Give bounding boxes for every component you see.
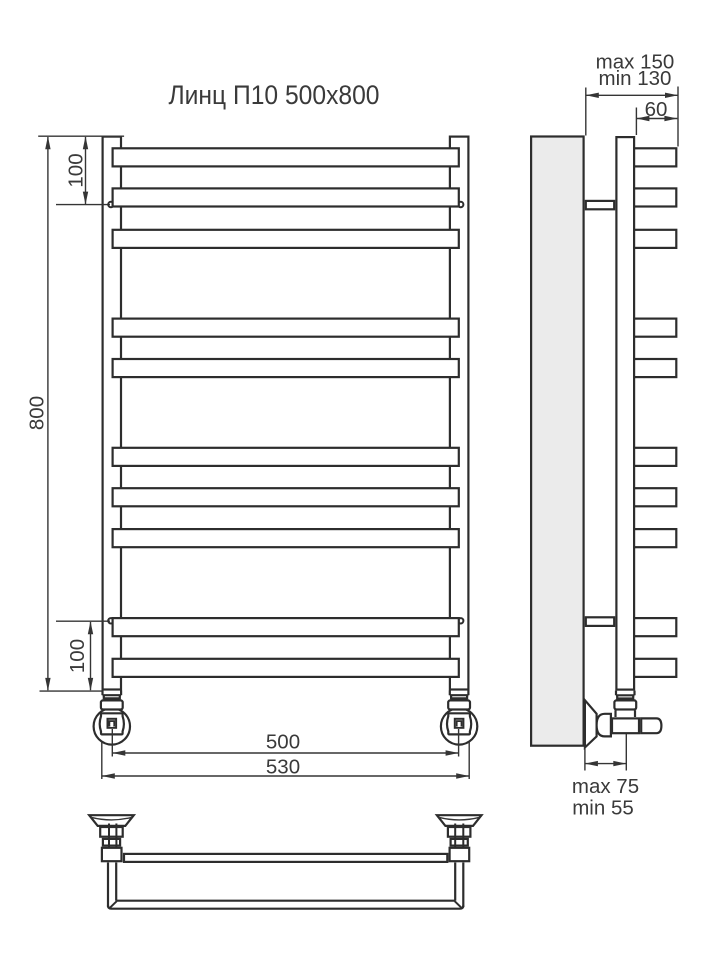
svg-text:max 75: max 75	[572, 775, 639, 798]
svg-text:500: 500	[266, 730, 300, 753]
svg-text:530: 530	[266, 755, 300, 778]
svg-text:800: 800	[26, 396, 49, 430]
svg-text:60: 60	[645, 98, 668, 121]
svg-text:100: 100	[65, 153, 88, 187]
svg-text:Линц П10 500х800: Линц П10 500х800	[169, 80, 380, 110]
svg-text:min 55: min 55	[572, 797, 634, 820]
svg-text:min 130: min 130	[599, 67, 672, 90]
svg-text:100: 100	[66, 639, 89, 673]
